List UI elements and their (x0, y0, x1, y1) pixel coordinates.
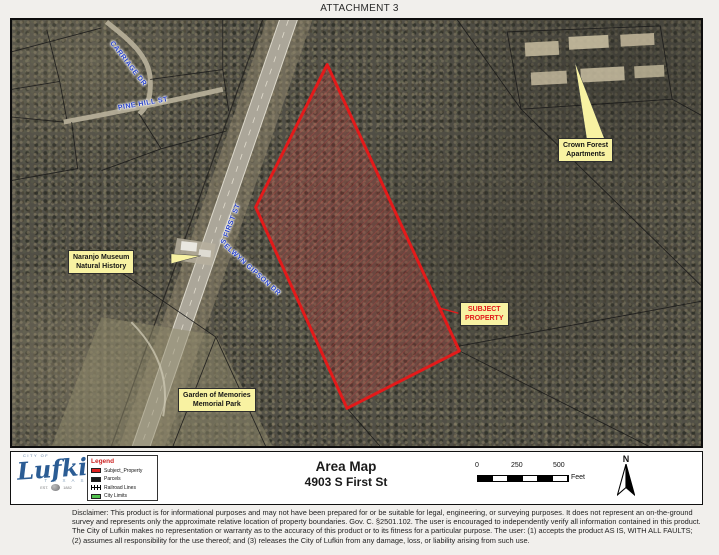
lufkin-logo: CITY OF Lufkin T E X A S EST. 1882 (16, 453, 96, 503)
subject-property-swatch (91, 468, 101, 473)
apartment-building (568, 35, 608, 50)
disclaimer-line: survey and represents only the approxima… (72, 517, 704, 526)
callout-line: Natural History (73, 262, 129, 271)
callout-line: Garden of Memories (183, 391, 251, 400)
callout-line: Naranjo Museum (73, 253, 129, 262)
disclaimer-line: (2) assumes all responsibility for the u… (72, 536, 704, 545)
scale-unit: Feet (571, 474, 585, 481)
logo-est-year: 1882 (63, 486, 71, 490)
legend-item-railroad-lines: Railroad Lines (91, 485, 154, 491)
map-subtitle-address: 4903 S First St (211, 475, 481, 489)
callout-line: Apartments (563, 150, 608, 159)
area-map: CARRIAGE DR PINE HILL ST S FIRST ST ELWY… (10, 18, 703, 448)
disclaimer-line: Disclaimer: This product is for informat… (72, 508, 704, 517)
legend-item-city-limits: City Limits (91, 493, 154, 499)
north-arrow-icon (617, 464, 635, 496)
subject-property-polygon (256, 65, 460, 409)
disclaimer-line: The City of Lufkin makes no representati… (72, 526, 704, 535)
legend-item-label: Subject_Property (104, 468, 142, 474)
logo-est: EST. (40, 486, 48, 490)
scale-bar-segments (477, 475, 569, 482)
north-label: N (611, 454, 641, 464)
scale-tick-0: 0 (475, 462, 479, 469)
callout-crown-forest: Crown Forest Apartments (558, 138, 613, 162)
museum-building (181, 241, 198, 252)
attachment-label: ATTACHMENT 3 (0, 3, 719, 14)
apartment-building (531, 71, 567, 86)
scale-tick-500: 500 (553, 462, 565, 469)
scale-bar: 0 250 500 Feet (473, 462, 613, 496)
callout-subject-property: SUBJECT PROPERTY (460, 302, 509, 326)
map-title: Area Map (211, 459, 481, 474)
legend-item-label: Parcels (104, 476, 121, 482)
apartment-building (525, 41, 559, 57)
map-overlay-graphics (12, 20, 701, 446)
legend-box: Legend Subject_Property Parcels Railroad… (87, 455, 158, 501)
map-title-block: Area Map 4903 S First St (211, 459, 481, 489)
logo-name: Lufkin (16, 455, 96, 482)
apartment-building (620, 33, 654, 47)
callout-line: PROPERTY (465, 314, 504, 323)
railroad-lines-swatch (91, 485, 101, 490)
callout-garden-of-memories: Garden of Memories Memorial Park (178, 388, 256, 412)
legend-title: Legend (91, 458, 154, 465)
scale-tick-250: 250 (511, 462, 523, 469)
disclaimer-text: Disclaimer: This product is for informat… (72, 508, 704, 545)
north-arrow: N (611, 454, 641, 504)
map-footer: CITY OF Lufkin T E X A S EST. 1882 Legen… (10, 451, 703, 505)
parcels-swatch (91, 477, 101, 482)
city-limits-swatch (91, 494, 101, 499)
apartment-building (634, 65, 664, 78)
callout-line: Crown Forest (563, 141, 608, 150)
callout-line: SUBJECT (465, 305, 504, 314)
legend-item-label: Railroad Lines (104, 485, 136, 491)
legend-item-label: City Limits (104, 493, 127, 499)
legend-item-subject-property: Subject_Property (91, 468, 154, 474)
garden-of-memories-area (52, 317, 273, 446)
callout-line: Memorial Park (183, 400, 251, 409)
callout-naranjo-museum: Naranjo Museum Natural History (68, 250, 134, 274)
apartment-building (580, 66, 624, 82)
globe-icon (51, 484, 60, 491)
legend-item-parcels: Parcels (91, 476, 154, 482)
